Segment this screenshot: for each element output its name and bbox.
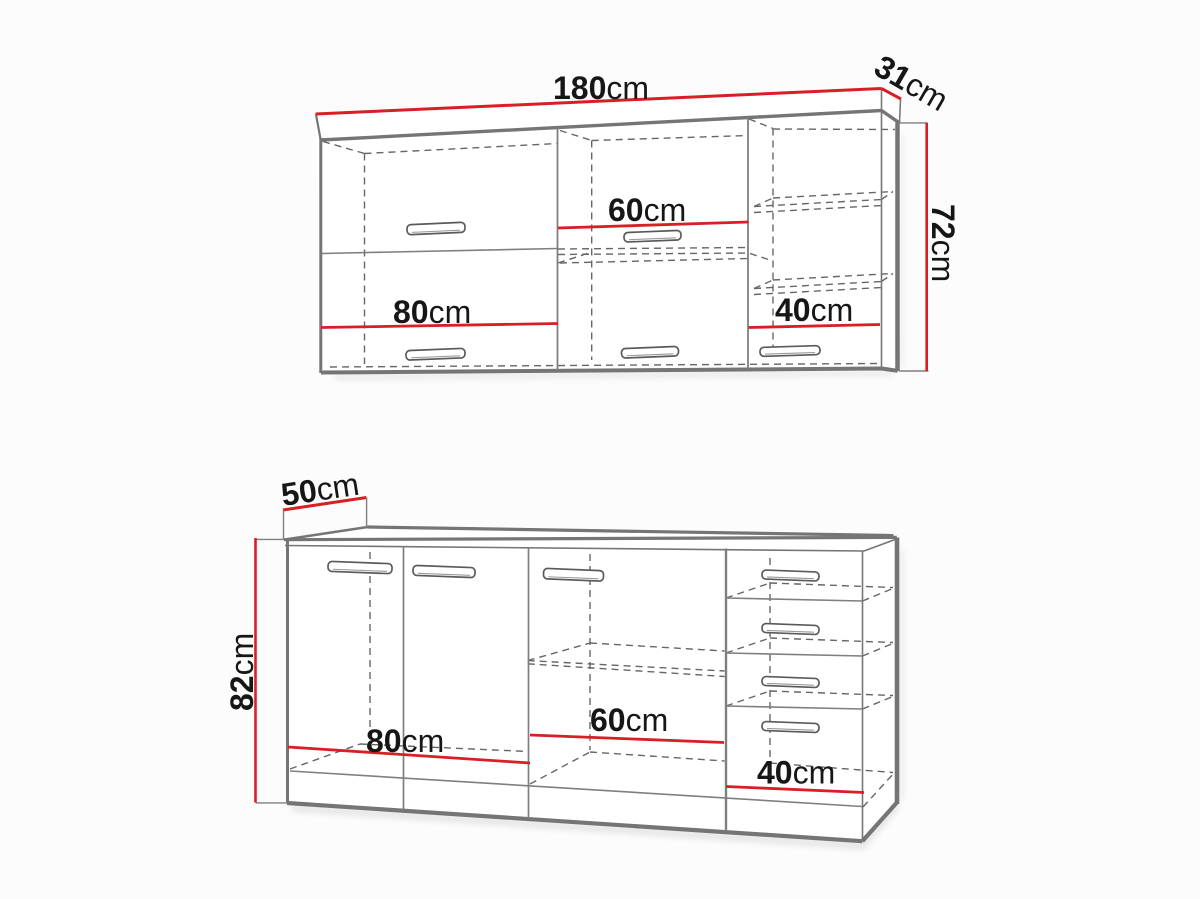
- svg-text:80cm: 80cm: [393, 294, 471, 330]
- svg-text:180cm: 180cm: [553, 70, 649, 106]
- svg-text:72cm: 72cm: [925, 204, 961, 282]
- svg-text:40cm: 40cm: [757, 755, 835, 791]
- svg-text:40cm: 40cm: [775, 292, 853, 328]
- svg-text:60cm: 60cm: [608, 192, 686, 228]
- svg-text:60cm: 60cm: [590, 702, 668, 738]
- svg-text:82cm: 82cm: [224, 633, 260, 711]
- svg-text:50cm: 50cm: [279, 466, 362, 513]
- svg-text:80cm: 80cm: [366, 723, 444, 759]
